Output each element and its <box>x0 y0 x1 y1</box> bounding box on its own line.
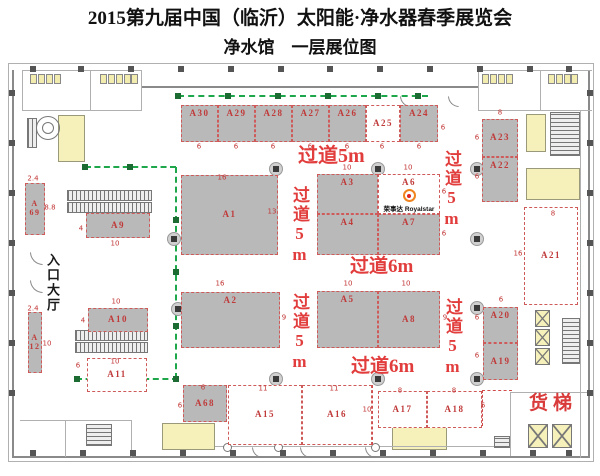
dimension-label: 6 <box>76 363 80 370</box>
dimension-label: 2.4 <box>27 306 38 313</box>
dimension-label: 6 <box>475 174 479 181</box>
booth-a9: A9 <box>86 213 150 238</box>
dimension-label: 8 <box>452 388 456 395</box>
booth-a26-label: A26 <box>330 109 365 119</box>
room-wall <box>65 420 66 457</box>
dimension-label: 8 <box>551 211 555 218</box>
freight-elevator <box>528 424 548 448</box>
column-marker <box>269 372 283 386</box>
escalator-lane <box>67 202 152 213</box>
green-marker <box>82 164 88 170</box>
green-marker <box>225 93 231 99</box>
escalator-lane <box>75 342 148 353</box>
spiral-stair <box>42 122 54 134</box>
green-marker <box>173 376 179 382</box>
dimension-label: 6 <box>475 135 479 142</box>
wall-column <box>330 450 336 456</box>
aisle-label: 过道5m <box>291 186 308 266</box>
dimension-label: 6 <box>201 385 205 392</box>
booth-a25-label: A25 <box>373 119 393 129</box>
green-marker <box>325 93 331 99</box>
booth-a20: A20 <box>483 307 518 343</box>
booth-a17-label: A17 <box>393 405 413 415</box>
wall-column <box>9 90 15 96</box>
elevator-lobby <box>526 114 546 152</box>
booth-a23: A23 <box>482 119 518 157</box>
wall-column <box>9 140 15 146</box>
wall-column <box>178 66 184 72</box>
restroom-fixture <box>124 74 131 84</box>
booth-a8-label: A8 <box>402 315 416 325</box>
green-marker <box>175 93 181 99</box>
booth-a15-label: A15 <box>255 410 275 420</box>
aisle-dash <box>482 390 512 391</box>
green-marker <box>375 93 381 99</box>
wall-column <box>9 390 15 396</box>
booth-a5: A5 <box>317 291 378 348</box>
royalstar-logo: 荣事达 Royalstar <box>379 189 439 213</box>
booth-a17: A17 <box>378 391 427 428</box>
dimension-label: 10 <box>402 281 411 288</box>
door-arc <box>30 252 43 265</box>
restroom-wall <box>141 70 142 111</box>
top-wall <box>142 86 478 88</box>
booth-a68-label: A68 <box>195 399 215 409</box>
dimension-label: 6 <box>178 403 182 410</box>
green-dashed-line <box>178 95 428 97</box>
bottom-wall <box>14 456 590 458</box>
outer-boundary <box>8 63 594 64</box>
wall-column <box>30 66 36 72</box>
restroom-fixture <box>482 74 489 84</box>
restroom-fixture <box>46 74 53 84</box>
restroom-wall <box>540 70 541 110</box>
wall-column <box>566 66 572 72</box>
wall-column <box>280 450 286 456</box>
dimension-label: 11 <box>259 386 268 393</box>
wall-column <box>130 450 136 456</box>
booth-a25: A25 <box>366 105 400 142</box>
aisle-dash <box>372 385 373 445</box>
booth-a69-label: A 69 <box>30 200 41 218</box>
aisle-label: 过道5m <box>291 293 308 373</box>
wall-column <box>477 66 483 72</box>
left-wall <box>12 70 14 458</box>
restroom-wall <box>478 70 592 71</box>
floor-plan-page: 2015第九届中国（临沂）太阳能·净水器春季展览会 净水馆 一层展位图 A30A… <box>0 0 600 476</box>
aisle-label: 过道6m <box>351 357 414 376</box>
wall-column <box>9 190 15 196</box>
booth-a6: A6荣事达 Royalstar <box>378 174 440 214</box>
booth-a21-label: A21 <box>541 251 561 261</box>
dimension-label: 10 <box>343 165 352 172</box>
elevator <box>535 310 550 327</box>
wall-column <box>9 340 15 346</box>
column-marker <box>470 232 484 246</box>
booth-a29-label: A29 <box>219 109 254 119</box>
green-marker <box>275 93 281 99</box>
booth-a10-label: A10 <box>108 315 128 325</box>
booth-a69: A 69 <box>25 183 45 235</box>
room <box>526 168 580 200</box>
dimension-label: 11 <box>330 386 339 393</box>
room <box>162 423 215 450</box>
dimension-label: 4 <box>79 226 83 233</box>
booth-a22-label: A22 <box>483 161 517 171</box>
booth-a24-label: A24 <box>401 109 437 119</box>
room-wall <box>20 420 132 421</box>
dimension-label: 6 <box>234 144 238 151</box>
dimension-label: 6 <box>197 144 201 151</box>
dimension-label: 9 <box>443 315 447 322</box>
restroom-wall <box>90 70 91 110</box>
booth-a10: A10 <box>88 308 148 332</box>
booth-a23-label: A23 <box>490 133 510 143</box>
door-arc <box>30 280 43 293</box>
wall-column <box>228 66 234 72</box>
wall-column <box>527 66 533 72</box>
dimension-label: 10 <box>111 241 120 248</box>
dimension-label: 6 <box>417 144 421 151</box>
booth-a16: A16 <box>302 385 372 445</box>
restroom-fixture <box>564 74 571 84</box>
dimension-label: 8.8 <box>44 205 55 212</box>
aisle-label: 过道5m <box>444 298 461 378</box>
booth-a3-label: A3 <box>318 178 377 188</box>
wall-column <box>9 290 15 296</box>
wall-column <box>587 390 593 396</box>
booth-a29: A29 <box>218 105 255 142</box>
booth-a4: A4 <box>317 214 378 255</box>
dimension-label: 10 <box>112 299 121 306</box>
wall-column <box>566 450 572 456</box>
wall-column <box>78 66 84 72</box>
dimension-label: 6 <box>442 189 446 196</box>
booth-a15: A15 <box>228 385 302 445</box>
restroom-fixture <box>571 74 578 84</box>
stair-lobby <box>58 115 85 162</box>
right-inner-wall <box>580 110 581 458</box>
restroom-fixture <box>131 74 138 84</box>
dimension-label: 2.4 <box>27 176 38 183</box>
column-marker <box>470 372 484 386</box>
restroom-fixture <box>100 74 107 84</box>
restroom-wall <box>22 70 23 111</box>
dimension-label: 6 <box>475 353 479 360</box>
wall-column <box>278 66 284 72</box>
booth-a28-label: A28 <box>256 109 291 119</box>
restroom-fixture <box>54 74 61 84</box>
dimension-label: 10 <box>404 165 413 172</box>
booth-a27-label: A27 <box>293 109 328 119</box>
restroom-fixture <box>30 74 37 84</box>
royalstar-logo-icon <box>403 189 416 202</box>
restroom-wall <box>22 110 142 111</box>
door-arc <box>448 96 459 107</box>
booth-a2-label: A2 <box>182 296 279 306</box>
wall-column <box>587 290 593 296</box>
restroom-wall <box>478 70 479 111</box>
dimension-label: 6 <box>442 231 446 238</box>
wall-column <box>128 66 134 72</box>
wall-column <box>80 450 86 456</box>
restroom-fixture <box>548 74 555 84</box>
wall-column <box>587 90 593 96</box>
booth-a6-label: A6 <box>379 178 439 188</box>
booth-a16-label: A16 <box>327 410 347 420</box>
booth-a5-label: A5 <box>318 295 377 305</box>
booth-a1: A1 <box>181 175 278 255</box>
green-marker <box>415 93 421 99</box>
restroom-fixture <box>556 74 563 84</box>
wall-column <box>9 240 15 246</box>
wall-column <box>230 450 236 456</box>
dimension-label: 4 <box>81 318 85 325</box>
booth-a22: A22 <box>482 157 518 202</box>
wall-column <box>587 240 593 246</box>
booth-a7: A7 <box>378 214 440 255</box>
booth-a19: A19 <box>483 343 518 380</box>
booth-a30: A30 <box>181 105 218 142</box>
elevator <box>535 329 550 346</box>
freight-elevator <box>552 424 572 448</box>
restroom-fixture <box>38 74 45 84</box>
green-marker <box>127 164 133 170</box>
dimension-label: 13 <box>268 209 277 216</box>
restroom-wall <box>478 110 592 111</box>
booth-a4-label: A4 <box>318 218 377 228</box>
dimension-label: 9 <box>282 315 286 322</box>
booth-a3: A3 <box>317 174 378 214</box>
wall-column <box>587 190 593 196</box>
stair-hatch <box>27 118 37 148</box>
stair-hatch <box>494 436 510 448</box>
stair-hatch <box>562 318 580 364</box>
green-marker <box>173 269 179 275</box>
restroom-fixture <box>490 74 497 84</box>
stair-hatch <box>550 112 580 156</box>
booth-a24: A24 <box>400 105 438 142</box>
booth-a19-label: A19 <box>491 357 511 367</box>
outer-boundary <box>8 63 9 462</box>
dimension-label: 16 <box>218 175 227 182</box>
aisle-label: 过道6m <box>350 257 413 276</box>
booth-a2: A2 <box>181 292 280 348</box>
dimension-label: 16 <box>216 281 225 288</box>
column-marker <box>269 162 283 176</box>
booth-a11-label: A11 <box>107 370 127 380</box>
booth-a8: A8 <box>378 291 440 348</box>
restroom-fixture <box>116 74 123 84</box>
booth-a27: A27 <box>292 105 329 142</box>
dimension-label: 6 <box>380 144 384 151</box>
dimension-label: 8 <box>498 110 502 117</box>
restroom-fixture <box>506 74 513 84</box>
dimension-label: 6 <box>499 297 503 304</box>
floor-plan: A30A29A28A27A26A25A24A23A22A 69A9A1A3A6荣… <box>0 0 600 476</box>
dimension-label: 6 <box>481 403 485 410</box>
stair-hatch <box>86 424 112 446</box>
dimension-label: 10 <box>344 281 353 288</box>
dimension-label: 10 <box>111 359 120 366</box>
booth-a18-label: A18 <box>445 405 465 415</box>
outer-boundary <box>8 461 594 462</box>
wall-column <box>327 66 333 72</box>
green-marker <box>74 376 80 382</box>
booth-a12: A 12 <box>28 312 42 373</box>
wall-column <box>480 450 486 456</box>
entrance-hall-label: 入口大厅 <box>46 253 59 313</box>
wall-column <box>427 66 433 72</box>
booth-a30-label: A30 <box>182 109 217 119</box>
right-wall <box>588 70 590 458</box>
dimension-label: 10 <box>363 407 372 414</box>
dimension-label: 6 <box>271 144 275 151</box>
restroom-fixture <box>108 74 115 84</box>
wall-column <box>180 450 186 456</box>
wall-column <box>377 66 383 72</box>
freight-room-wall <box>510 392 511 456</box>
booth-a21: A21 <box>524 207 578 305</box>
wall-column <box>587 140 593 146</box>
dimension-label: 10 <box>43 341 52 348</box>
freight-elevator-label: 货梯 <box>529 394 577 413</box>
green-marker <box>173 217 179 223</box>
dimension-label: 6 <box>308 144 312 151</box>
royalstar-logo-text: 荣事达 Royalstar <box>384 203 435 213</box>
dimension-label: 6 <box>345 144 349 151</box>
booth-a18: A18 <box>427 391 482 428</box>
booth-a26: A26 <box>329 105 366 142</box>
wall-column <box>587 340 593 346</box>
booth-a28: A28 <box>255 105 292 142</box>
wall-column <box>30 450 36 456</box>
dimension-label: 16 <box>514 251 523 258</box>
wall-column <box>530 450 536 456</box>
column-marker <box>167 232 181 246</box>
booth-a9-label: A9 <box>111 221 125 231</box>
wall-column <box>430 450 436 456</box>
dimension-label: 6 <box>475 315 479 322</box>
escalator-lane <box>67 190 152 201</box>
restroom-fixture <box>498 74 505 84</box>
outer-boundary <box>593 63 594 462</box>
booth-a20-label: A20 <box>484 311 517 321</box>
elevator <box>535 348 550 365</box>
green-marker <box>173 323 179 329</box>
booth-a1-label: A1 <box>223 210 237 220</box>
dimension-label: 8 <box>398 388 402 395</box>
booth-a12-label: A 12 <box>30 334 41 352</box>
dimension-label: 6 <box>441 125 445 132</box>
wall-column <box>380 450 386 456</box>
booth-a7-label: A7 <box>379 218 439 228</box>
